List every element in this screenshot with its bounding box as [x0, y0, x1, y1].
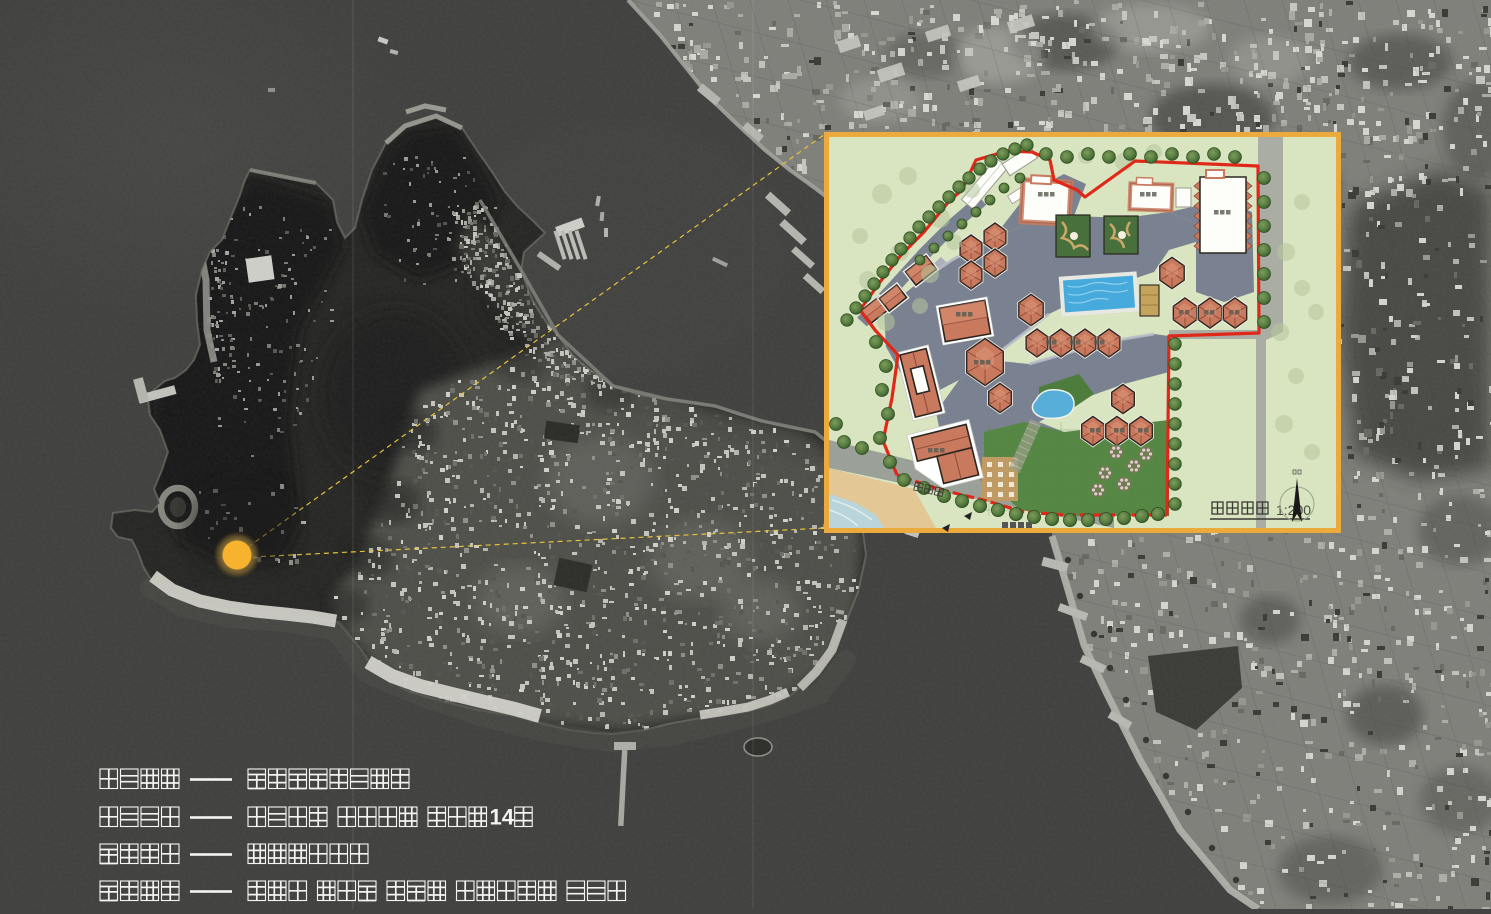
svg-text:14: 14 — [490, 805, 515, 830]
